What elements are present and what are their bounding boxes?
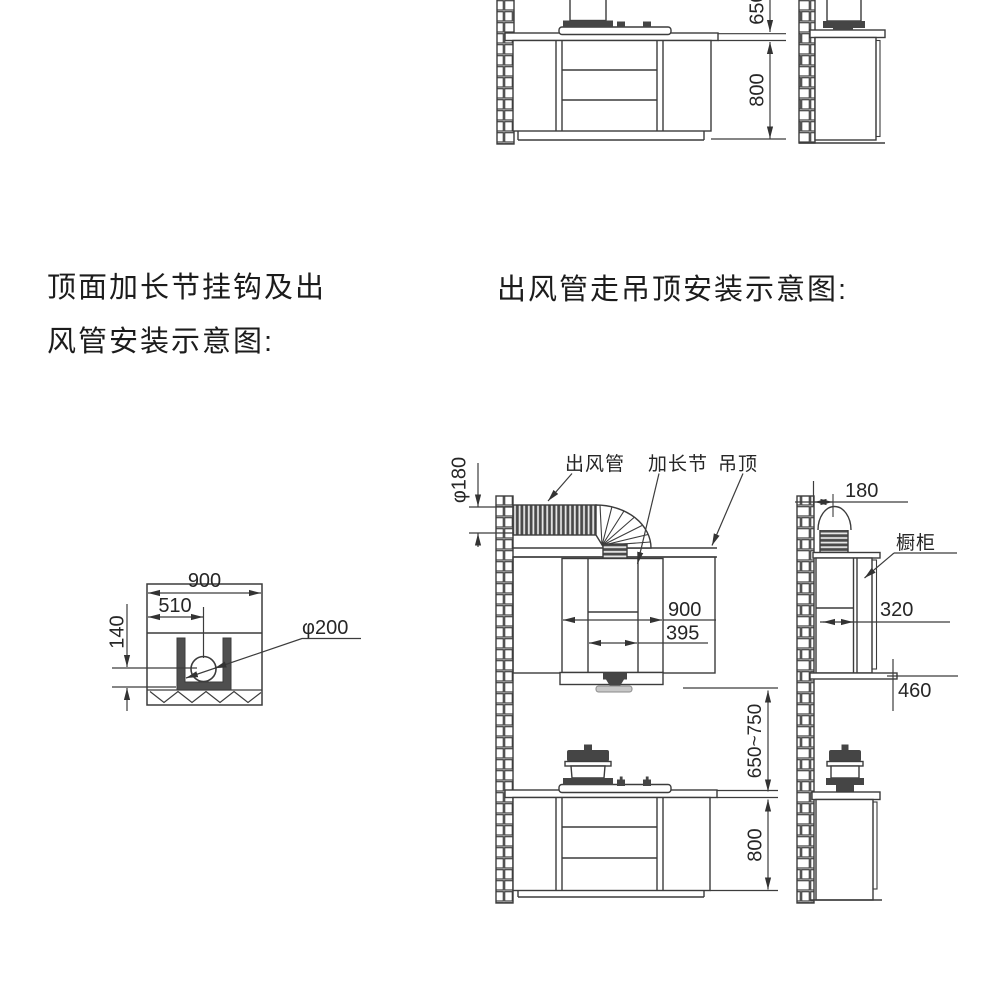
- oil-cup: [596, 686, 632, 692]
- dim-510-label: 510: [158, 595, 191, 617]
- dim-counter-height-label: 800: [744, 828, 766, 861]
- range-hood: [560, 559, 663, 693]
- counter-cabinet-front: [505, 790, 717, 897]
- dim-140-label: 140: [106, 615, 128, 648]
- installation-drawing: 650 800: [0, 0, 1002, 996]
- ceiling-install-diagram: 出风管 加长节 吊顶 橱柜 φ180 180 900 395 320 460 6…: [448, 453, 958, 903]
- counter-cabinet-front: [505, 33, 718, 140]
- side-duct: [818, 494, 851, 553]
- top-partial-diagram: 650 800: [497, 0, 885, 144]
- dim-hole-diameter-label: φ200: [302, 617, 348, 639]
- dim-hood-width-label: 900: [668, 599, 701, 621]
- label-ceiling: 吊顶: [718, 454, 758, 475]
- duct-horizontal: [513, 505, 596, 535]
- label-outlet-pipe: 出风管: [565, 453, 625, 475]
- dim-900-topview-label: 900: [188, 570, 221, 592]
- dim-outlet-width-label: 395: [666, 623, 699, 645]
- label-cabinet: 橱柜: [896, 532, 936, 554]
- cooktop-with-pot: [559, 745, 671, 793]
- dim-800-top-label: 800: [746, 73, 768, 106]
- hood-top-view-diagram: 900 510 140 φ200: [106, 570, 361, 711]
- dim-wall-offset-label: 180: [845, 480, 878, 502]
- dim-650-top-label: 650: [746, 0, 768, 25]
- dim-cabinet-depth-label: 320: [880, 599, 913, 621]
- duct-collar: [603, 544, 627, 560]
- brick-wall-left: [496, 496, 513, 903]
- brick-wall-left: [497, 0, 514, 144]
- side-counter-cabinet: [810, 745, 882, 901]
- dim-cabinet-height-label: 460: [898, 680, 931, 702]
- dim-hood-to-counter-label: 650~750: [745, 704, 766, 779]
- label-extension-section: 加长节: [648, 453, 708, 475]
- outlet-duct: [513, 505, 651, 560]
- cooktop-with-pot: [559, 0, 671, 35]
- brick-wall-right: [797, 496, 814, 903]
- dim-duct-diameter-label: φ180: [448, 457, 470, 503]
- brick-wall-right: [799, 0, 815, 143]
- page: 顶面加长节挂钩及出 风管安装示意图: 出风管走吊顶安装示意图:: [0, 0, 1002, 996]
